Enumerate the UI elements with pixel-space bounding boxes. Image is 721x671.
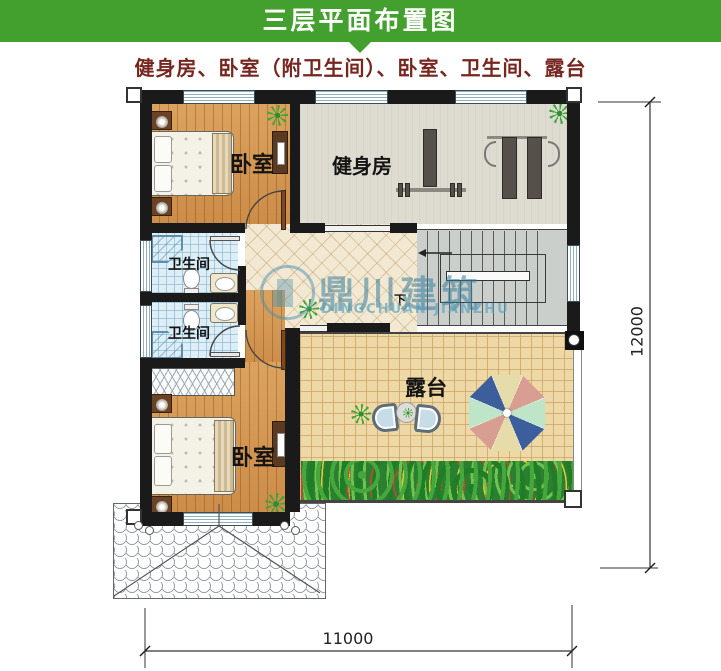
wall-gym-bottom-right bbox=[390, 223, 417, 233]
sink-icon bbox=[210, 303, 238, 323]
door-leaf bbox=[210, 236, 240, 241]
column-circle-marker bbox=[565, 331, 584, 350]
window-icon bbox=[183, 512, 253, 526]
title-banner: 三层平面布置图 bbox=[0, 0, 721, 42]
porch-post-icon bbox=[134, 521, 143, 530]
stairs-bottom-line bbox=[417, 325, 567, 326]
dimension-tick bbox=[645, 563, 655, 573]
room-label-terrace: 露台 bbox=[405, 372, 447, 402]
window-icon bbox=[183, 90, 255, 104]
barbell-plate-icon bbox=[398, 183, 403, 197]
room-label-bathroom-bottom: 卫生间 bbox=[168, 323, 210, 343]
wall-bedroom-top-bottom bbox=[140, 223, 245, 233]
door-leaf bbox=[210, 352, 240, 357]
barbell-plate-icon bbox=[405, 183, 410, 197]
porch-post-icon bbox=[291, 526, 300, 535]
plant-icon bbox=[351, 404, 371, 424]
room-label-bathroom-top: 卫生间 bbox=[168, 254, 210, 274]
plan-subtitle: 健身房、卧室（附卫生间）、卧室、卫生间、露台 bbox=[0, 52, 721, 81]
floor-plan-page: 三层平面布置图 健身房、卧室（附卫生间）、卧室、卫生间、露台 bbox=[0, 0, 721, 671]
stairs-top-line bbox=[417, 229, 567, 230]
corner-marker bbox=[564, 490, 582, 508]
window-icon bbox=[140, 240, 152, 292]
window-icon bbox=[567, 245, 580, 302]
watermark-brand-latin-text: DINGCHUAN JIANZHU bbox=[321, 302, 510, 317]
window-icon bbox=[315, 90, 388, 104]
pillow-icon bbox=[154, 165, 172, 192]
wall-bathroom-right bbox=[238, 266, 246, 293]
page-title: 三层平面布置图 bbox=[0, 0, 721, 42]
lamp-icon bbox=[156, 399, 168, 411]
tv-cabinet-icon bbox=[272, 131, 288, 174]
terrace-shrub-band bbox=[301, 461, 578, 501]
room-label-bedroom-bottom: 卧室 bbox=[231, 440, 275, 472]
window-icon bbox=[140, 305, 152, 358]
porch-post-icon bbox=[145, 526, 154, 535]
blanket-icon bbox=[212, 133, 232, 194]
sink-basin-icon bbox=[215, 307, 235, 321]
door-leaf bbox=[281, 330, 286, 370]
pillow-icon bbox=[154, 136, 172, 163]
wall-bedroom-gym bbox=[290, 104, 300, 233]
treadmill-icon bbox=[502, 137, 517, 199]
plant-icon bbox=[267, 105, 288, 126]
wall-bedroom-bottom-top bbox=[140, 358, 245, 368]
terrace-bottom-line bbox=[300, 500, 580, 503]
wall-bathroom-right bbox=[238, 293, 246, 325]
nightstand-icon bbox=[150, 197, 172, 216]
porch-post-icon bbox=[280, 521, 289, 530]
sink-icon bbox=[210, 273, 238, 293]
tv-icon bbox=[277, 142, 285, 165]
lamp-icon bbox=[156, 202, 168, 214]
watermark-building-icon bbox=[272, 290, 281, 307]
door-leaf bbox=[281, 190, 286, 230]
barbell-plate-icon bbox=[450, 183, 455, 197]
room-label-gym: 健身房 bbox=[332, 150, 392, 179]
corner-marker bbox=[126, 87, 142, 103]
gym-door-threshold bbox=[325, 225, 390, 232]
nightstand-icon bbox=[150, 111, 172, 130]
watermark-logo-icon bbox=[260, 265, 315, 320]
umbrella-center-icon bbox=[503, 409, 511, 417]
tv-icon bbox=[277, 433, 285, 457]
dimension-value-right: 12000 bbox=[628, 302, 647, 362]
treadmill-icon bbox=[527, 137, 542, 199]
terrace-railing bbox=[573, 334, 582, 500]
pillow-icon bbox=[154, 456, 172, 486]
bench-press-bench-icon bbox=[423, 129, 437, 187]
pillow-icon bbox=[154, 424, 172, 454]
dimension-tick bbox=[140, 646, 150, 656]
room-label-bedroom-top: 卧室 bbox=[230, 147, 274, 179]
corner-marker bbox=[566, 87, 582, 103]
wall-gym-bottom-left bbox=[300, 223, 325, 233]
wardrobe-icon bbox=[150, 368, 235, 396]
sink-basin-icon bbox=[215, 277, 235, 291]
dimension-tick bbox=[645, 97, 655, 107]
wall-bathroom-divider bbox=[140, 293, 246, 302]
nightstand-icon bbox=[150, 394, 172, 413]
dimension-value-bottom: 11000 bbox=[318, 629, 378, 648]
barbell-plate-icon bbox=[457, 183, 462, 197]
lamp-icon bbox=[156, 116, 168, 128]
wall-bedroom-terrace bbox=[285, 328, 300, 512]
terrace-top-line bbox=[300, 332, 578, 334]
dimension-tick bbox=[567, 646, 577, 656]
plant-icon bbox=[403, 408, 413, 418]
terrace-door-threshold bbox=[300, 325, 327, 332]
window-icon bbox=[455, 90, 527, 104]
